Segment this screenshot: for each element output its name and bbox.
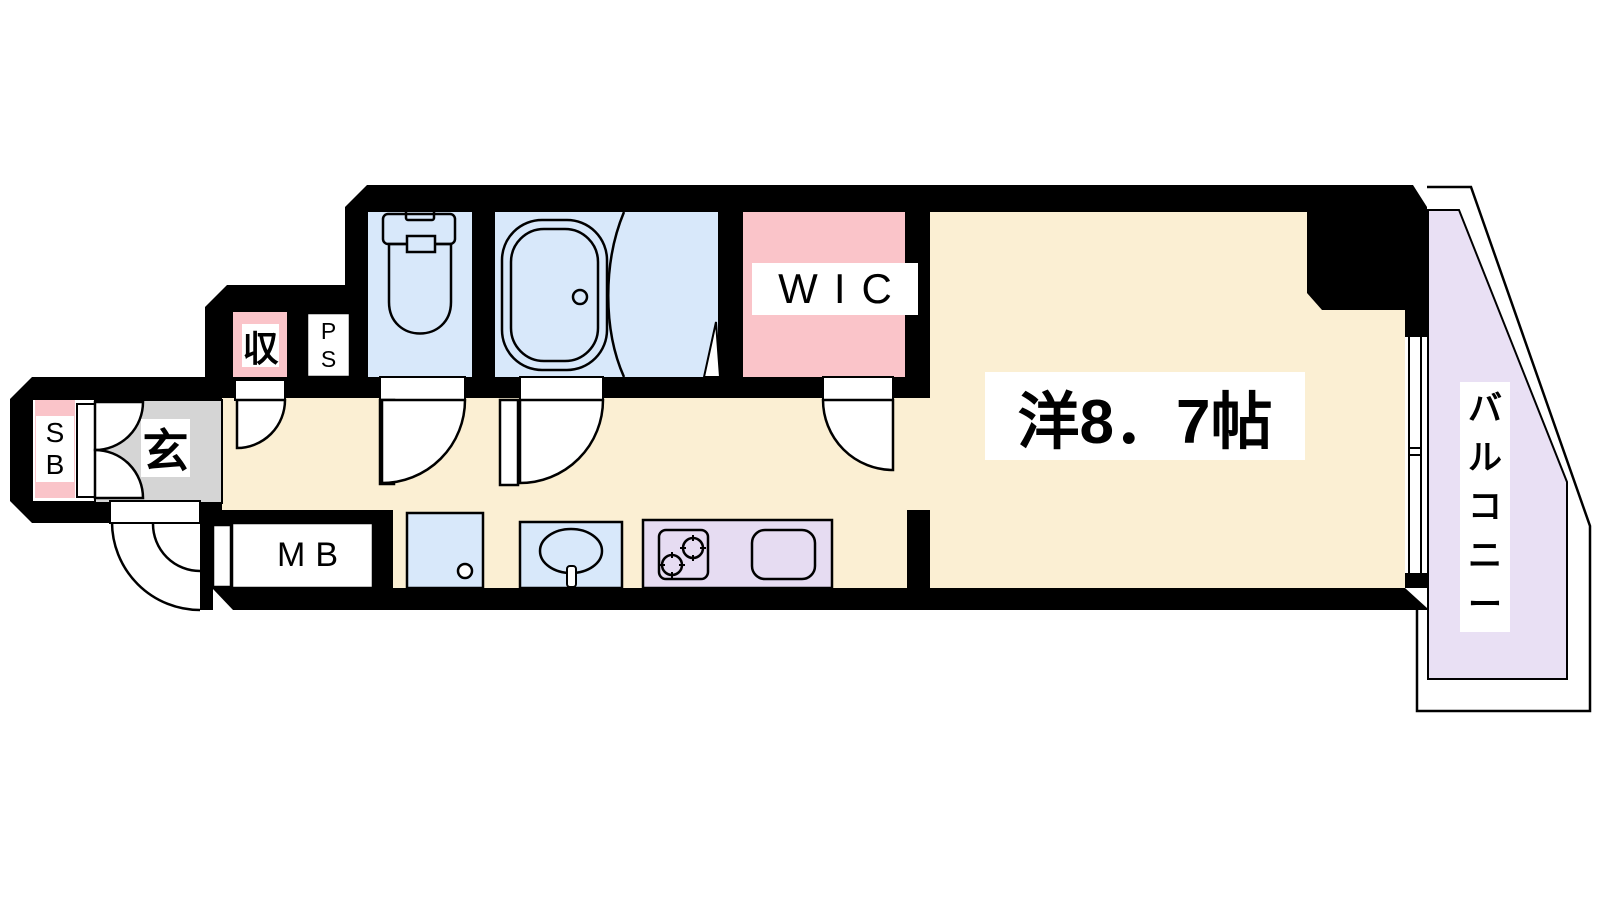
genkan-label: 玄 [141, 419, 190, 477]
wall-segment [10, 377, 930, 400]
wall-segment [345, 185, 1427, 212]
entrance-door-swing-inner [153, 524, 200, 571]
bath-door-opening [520, 377, 603, 400]
balcony-label-char: バ [1468, 385, 1502, 434]
sink-faucet [567, 566, 576, 587]
wall-segment [472, 185, 495, 400]
washer-pan [407, 513, 483, 588]
washer-pan-drain [458, 564, 472, 578]
entrance-door-swing-outer [112, 522, 200, 610]
toilet-door-opening [380, 377, 465, 400]
balcony-label-char: ー [1468, 581, 1502, 630]
shoe-box-label: S B [36, 416, 74, 482]
wall-segment [718, 185, 743, 400]
entrance-door-opening [110, 501, 200, 523]
meter-box-label: MB [236, 527, 379, 584]
wall-segment [907, 510, 930, 588]
wall-segment [393, 588, 1427, 610]
balcony-label-char: ル [1468, 434, 1502, 483]
floor-plan-canvas: 玄 S B 収 P S MB WIC 洋8．7帖 バ ル コ ニ ー [0, 0, 1600, 900]
balcony-window [1405, 337, 1427, 573]
pipe-space-label: P S [310, 316, 347, 374]
pipe-space-label-line2: S [321, 345, 336, 373]
shoe-cabinet [77, 404, 95, 497]
pipe-space-label-line1: P [321, 317, 336, 345]
wall-notch-block [1307, 185, 1427, 310]
storage-label: 収 [242, 324, 279, 367]
shoe-box-label-line2: B [46, 449, 65, 481]
main-room-label: 洋8．7帖 [985, 372, 1305, 460]
balcony-label: バ ル コ ニ ー [1460, 382, 1510, 632]
floor-plan-drawing [0, 0, 1600, 900]
wall-segment [1405, 310, 1427, 337]
toilet-seat-button [407, 236, 435, 252]
shoe-box-label-line1: S [46, 417, 65, 449]
storage-door-opening [235, 380, 285, 400]
wic-label: WIC [752, 263, 918, 315]
balcony-label-char: ニ [1468, 532, 1502, 581]
entrance-door-leaf [213, 525, 231, 587]
balcony-label-char: コ [1468, 483, 1502, 532]
wic-door-opening [823, 377, 893, 400]
bath-door-leaf [500, 400, 518, 485]
